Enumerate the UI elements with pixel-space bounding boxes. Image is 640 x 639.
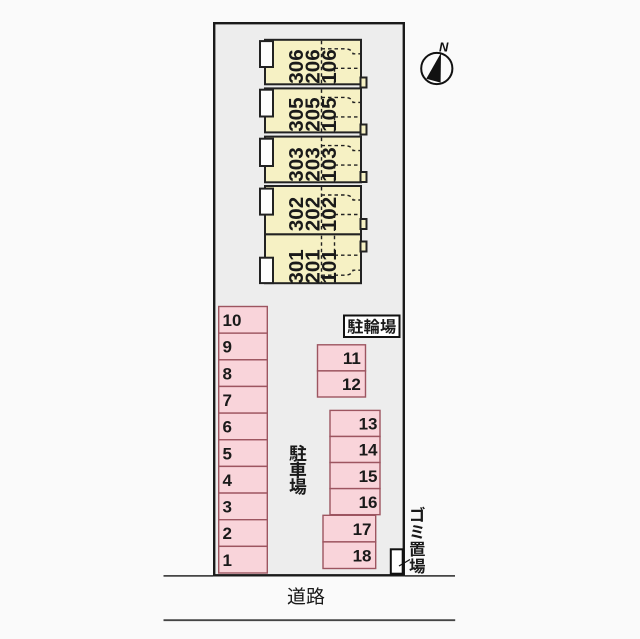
svg-text:16: 16 xyxy=(359,493,378,512)
svg-text:106: 106 xyxy=(318,49,341,83)
svg-text:14: 14 xyxy=(359,441,378,460)
svg-text:7: 7 xyxy=(223,391,232,410)
svg-text:3: 3 xyxy=(223,498,232,517)
svg-text:15: 15 xyxy=(359,467,378,486)
svg-text:13: 13 xyxy=(359,415,378,434)
svg-text:5: 5 xyxy=(223,444,232,463)
svg-text:103: 103 xyxy=(318,147,341,181)
svg-text:10: 10 xyxy=(223,311,242,330)
svg-text:2: 2 xyxy=(223,524,232,543)
svg-text:4: 4 xyxy=(223,471,233,490)
svg-text:12: 12 xyxy=(342,375,361,394)
svg-text:102: 102 xyxy=(318,197,341,231)
svg-text:9: 9 xyxy=(223,338,232,357)
svg-text:101: 101 xyxy=(318,249,341,283)
svg-text:N: N xyxy=(439,40,449,55)
svg-text:8: 8 xyxy=(223,364,232,383)
svg-text:17: 17 xyxy=(353,520,372,539)
svg-text:6: 6 xyxy=(223,418,232,437)
svg-text:18: 18 xyxy=(353,546,372,565)
svg-text:1: 1 xyxy=(223,551,232,570)
svg-text:105: 105 xyxy=(318,97,341,131)
svg-text:11: 11 xyxy=(343,349,361,368)
